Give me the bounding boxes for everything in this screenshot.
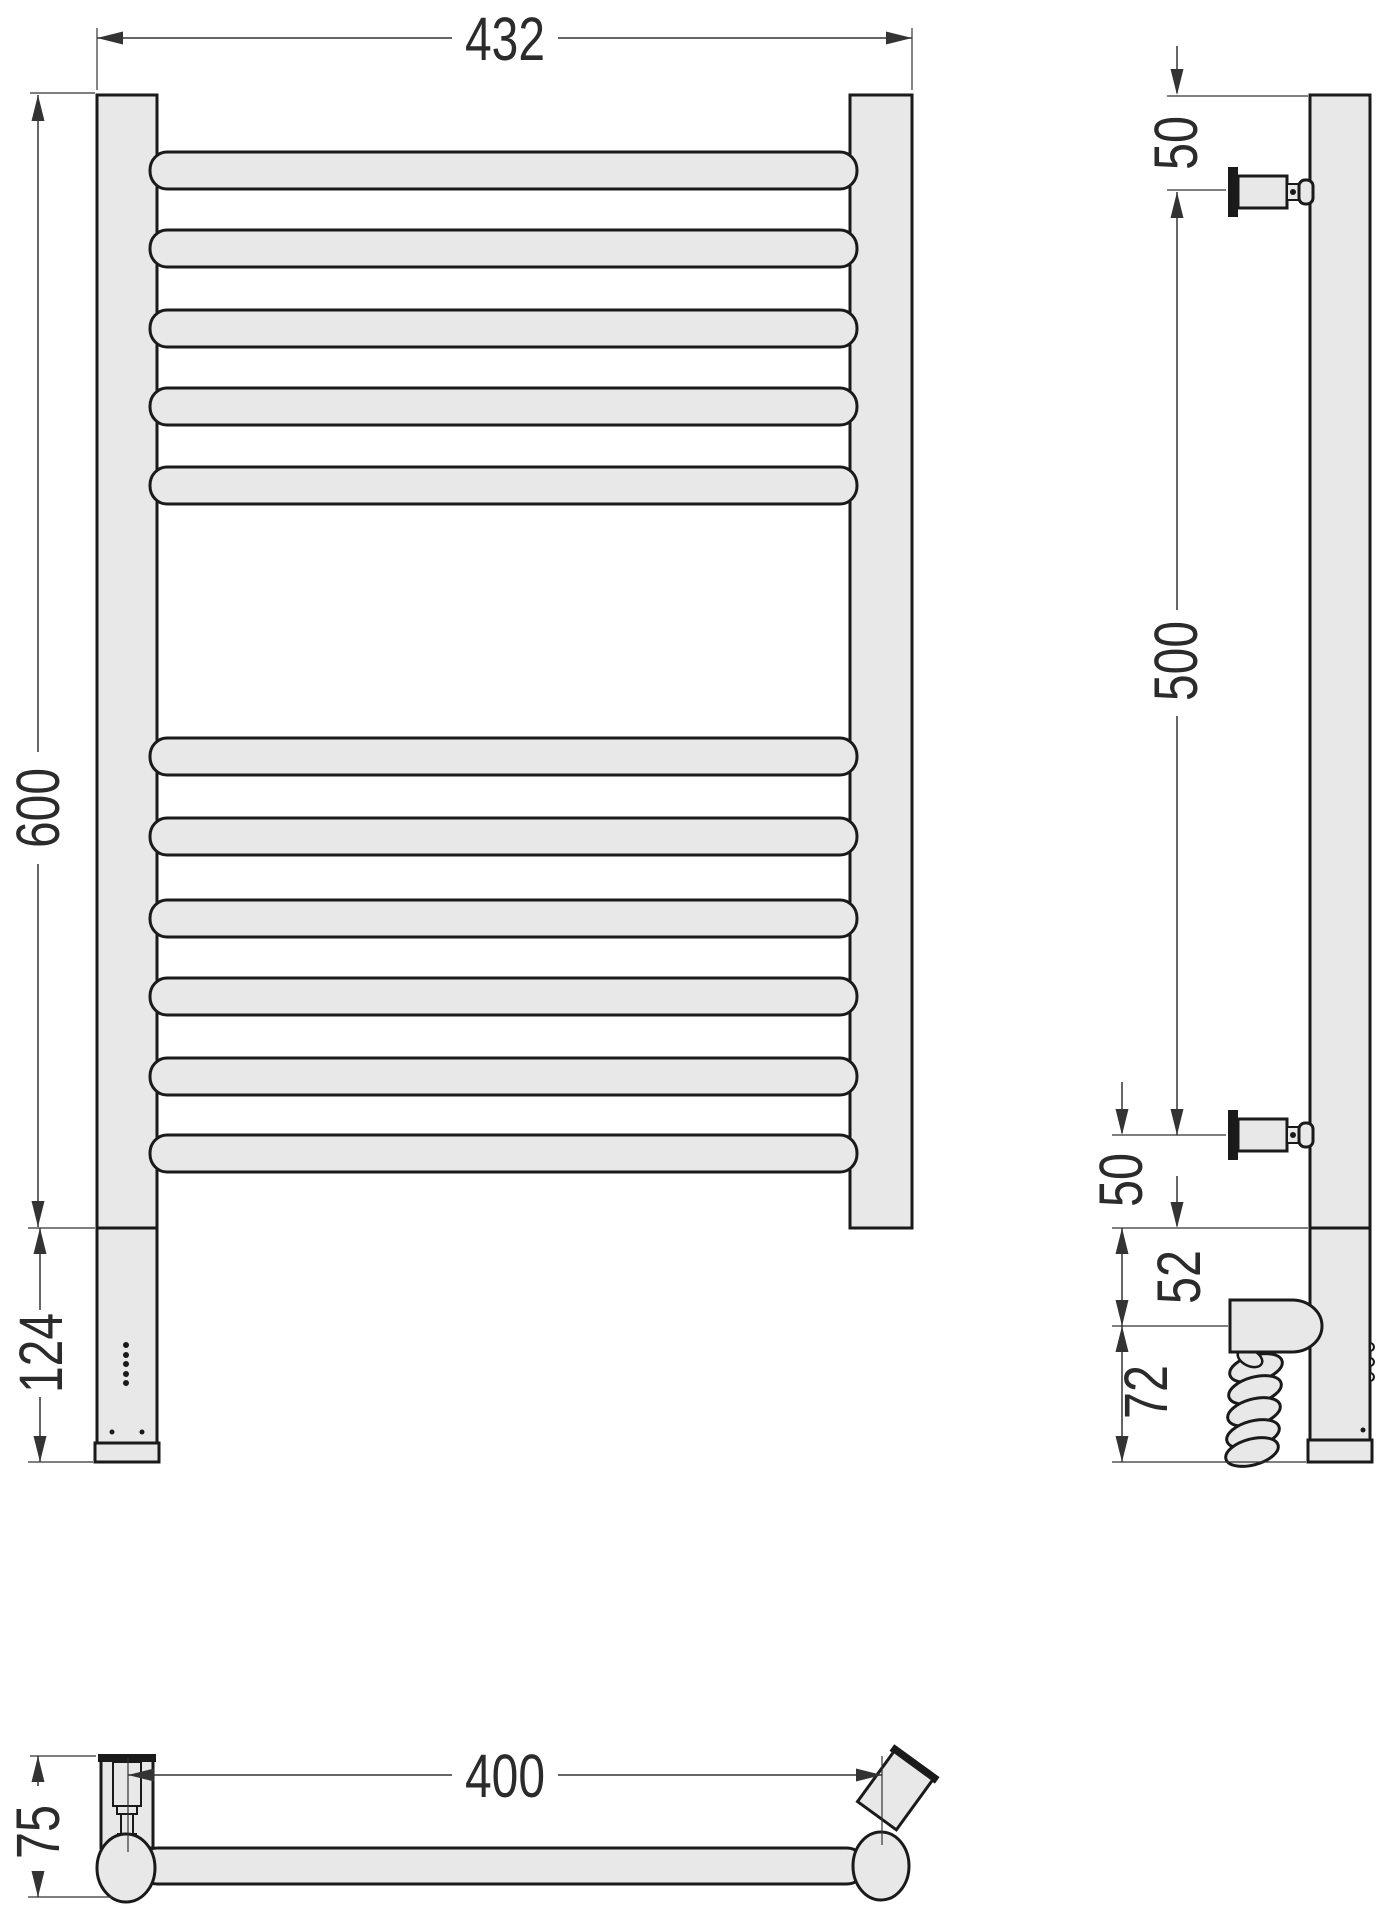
wall-bracket-bottom bbox=[1228, 1110, 1313, 1160]
towel-bar bbox=[150, 1058, 857, 1095]
dim-side-bracket-span: 500 bbox=[1142, 621, 1210, 701]
towel-bar bbox=[150, 978, 857, 1015]
towel-rail-drawing: 432 600 124 bbox=[0, 0, 1394, 1920]
side-view bbox=[1223, 95, 1374, 1472]
towel-bar bbox=[150, 152, 857, 189]
wall-bracket-top bbox=[1228, 167, 1313, 217]
towel-bar bbox=[150, 818, 857, 855]
front-left-rail bbox=[97, 95, 157, 1443]
plan-right-foot bbox=[853, 1832, 909, 1900]
dim-bottom-bracket-span: 400 bbox=[465, 1742, 545, 1810]
towel-bar bbox=[150, 738, 857, 775]
dim-front-height: 600 bbox=[4, 768, 72, 848]
towel-bar bbox=[150, 467, 857, 504]
dim-front-width: 432 bbox=[465, 5, 545, 73]
technical-drawing-canvas: 432 600 124 bbox=[0, 0, 1394, 1920]
dim-side-heater-zone: 72 bbox=[1112, 1365, 1180, 1419]
towel-bar bbox=[150, 1135, 857, 1172]
front-end-cap bbox=[95, 1443, 159, 1462]
dim-front-bottom-section: 124 bbox=[7, 1313, 75, 1393]
towel-bar bbox=[150, 900, 857, 937]
towel-bars bbox=[150, 152, 857, 1172]
plan-left-foot bbox=[97, 1834, 155, 1902]
front-view bbox=[95, 95, 912, 1462]
towel-bar bbox=[150, 388, 857, 425]
towel-bar bbox=[150, 310, 857, 347]
plan-right-bracket bbox=[853, 1744, 940, 1900]
side-dimensions: 50 500 50 52 72 bbox=[1087, 46, 1308, 1462]
side-rail bbox=[1310, 95, 1370, 1440]
front-right-rail bbox=[850, 95, 912, 1228]
dim-side-heater-gap: 52 bbox=[1145, 1250, 1213, 1304]
towel-bar bbox=[150, 230, 857, 267]
heater-element bbox=[1230, 1300, 1322, 1352]
dim-side-top-offset: 50 bbox=[1142, 116, 1210, 170]
dim-side-bottom-offset: 50 bbox=[1087, 1153, 1155, 1207]
power-cord-coil bbox=[1223, 1345, 1286, 1471]
dim-bottom-depth: 75 bbox=[4, 1805, 72, 1859]
plan-bar bbox=[140, 1848, 864, 1884]
side-end-cap bbox=[1308, 1440, 1372, 1462]
